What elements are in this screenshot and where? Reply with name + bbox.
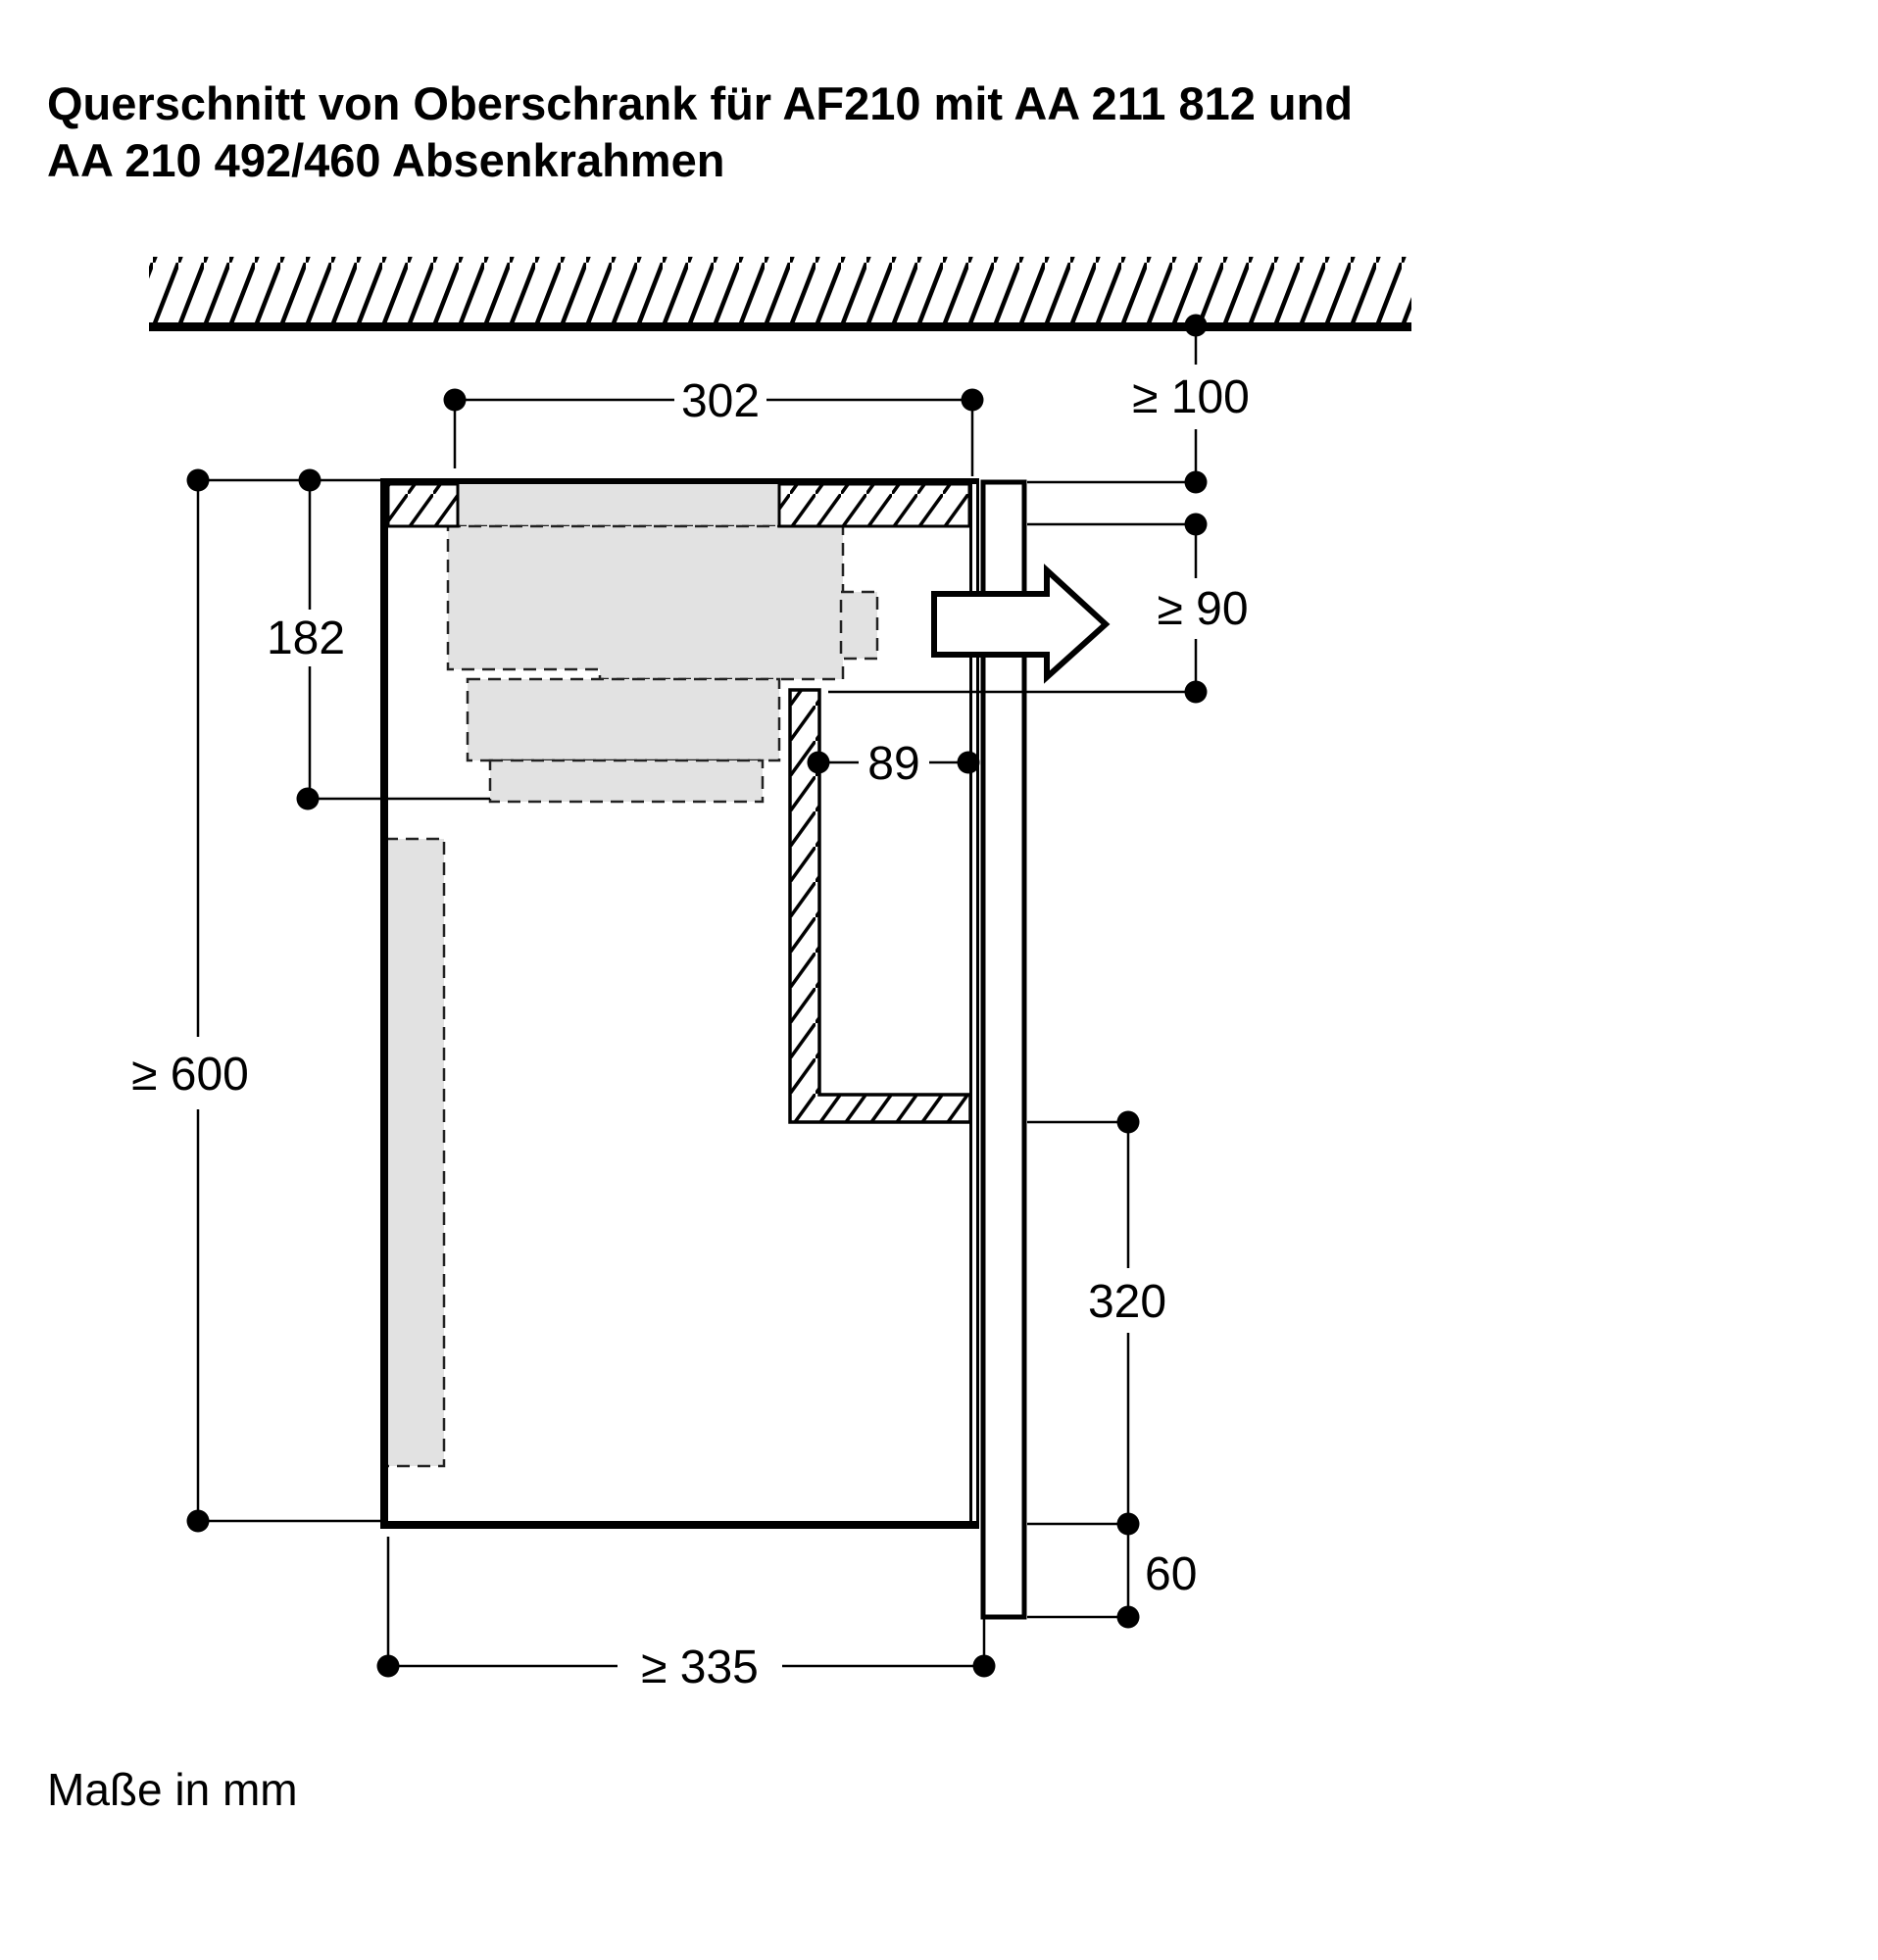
ceiling-hatch <box>149 257 1411 322</box>
page-title-line1: Querschnitt von Oberschrank für AF210 mi… <box>47 77 1353 129</box>
measurement-dot <box>1185 681 1208 704</box>
cabinet-top-panel-right <box>779 484 969 526</box>
dim-cutout-width: 302 <box>455 375 972 476</box>
dim-outlet-height-label: ≥ 90 <box>1157 583 1248 635</box>
dim-cabinet-depth-label: ≥ 335 <box>641 1641 759 1693</box>
hood-main-body <box>448 526 843 679</box>
hood-outlet-stub <box>841 592 877 659</box>
measurement-dot <box>297 788 320 810</box>
measurement-dot <box>1185 471 1208 494</box>
dim-duct-outlet-offset-label: 320 <box>1088 1276 1166 1328</box>
cabinet-top-panel-left <box>388 484 458 526</box>
dim-panel-overhang-label: 60 <box>1145 1548 1197 1600</box>
dim-cabinet-height-label: ≥ 600 <box>131 1049 249 1101</box>
dim-cutout-width-label: 302 <box>681 375 760 427</box>
measurement-dot <box>299 469 321 492</box>
dim-ceiling-distance: ≥ 100 <box>1027 336 1250 482</box>
measurement-dot <box>377 1655 400 1678</box>
measurement-dot <box>187 469 210 492</box>
dim-appliance-depth-label: 182 <box>267 612 345 664</box>
measurement-dot <box>1117 1606 1140 1629</box>
dim-cabinet-depth: ≥ 335 <box>388 1537 984 1693</box>
measurement-dot <box>1185 315 1208 337</box>
measurement-dot <box>962 389 984 412</box>
hood-bottom-band <box>490 760 763 802</box>
dim-panel-overhang: 60 <box>1027 1535 1197 1617</box>
page-title-line2: AA 210 492/460 Absenkrahmen <box>47 134 724 186</box>
hood-lower-body <box>468 679 779 760</box>
hood-front-strip <box>385 839 444 1466</box>
units-footnote: Maße in mm <box>47 1764 298 1815</box>
diagram-page: 302 ≥ 100 ≥ 90 182 89 ≥ 600 <box>0 0 1878 1960</box>
dim-duct-outlet-offset: 320 <box>1027 1122 1166 1524</box>
measurement-dot <box>1117 1111 1140 1134</box>
cabinet-left-wall <box>380 478 388 1527</box>
measurement-dot <box>808 752 830 774</box>
cabinet-bottom <box>380 1521 979 1529</box>
ceiling-line <box>149 322 1411 331</box>
measurement-dot <box>973 1655 996 1678</box>
dim-duct-wall-gap: 89 <box>829 738 958 790</box>
measurement-dot <box>1117 1513 1140 1536</box>
dim-duct-wall-gap-label: 89 <box>867 738 919 790</box>
dim-appliance-depth: 182 <box>191 480 490 799</box>
cross-section-diagram: 302 ≥ 100 ≥ 90 182 89 ≥ 600 <box>0 0 1878 1960</box>
measurement-dot <box>958 752 980 774</box>
measurement-dot <box>444 389 467 412</box>
measurement-dot <box>1185 514 1208 536</box>
hood-top-collar <box>458 481 779 526</box>
measurement-dot <box>187 1510 210 1533</box>
dim-ceiling-distance-label: ≥ 100 <box>1132 371 1250 423</box>
